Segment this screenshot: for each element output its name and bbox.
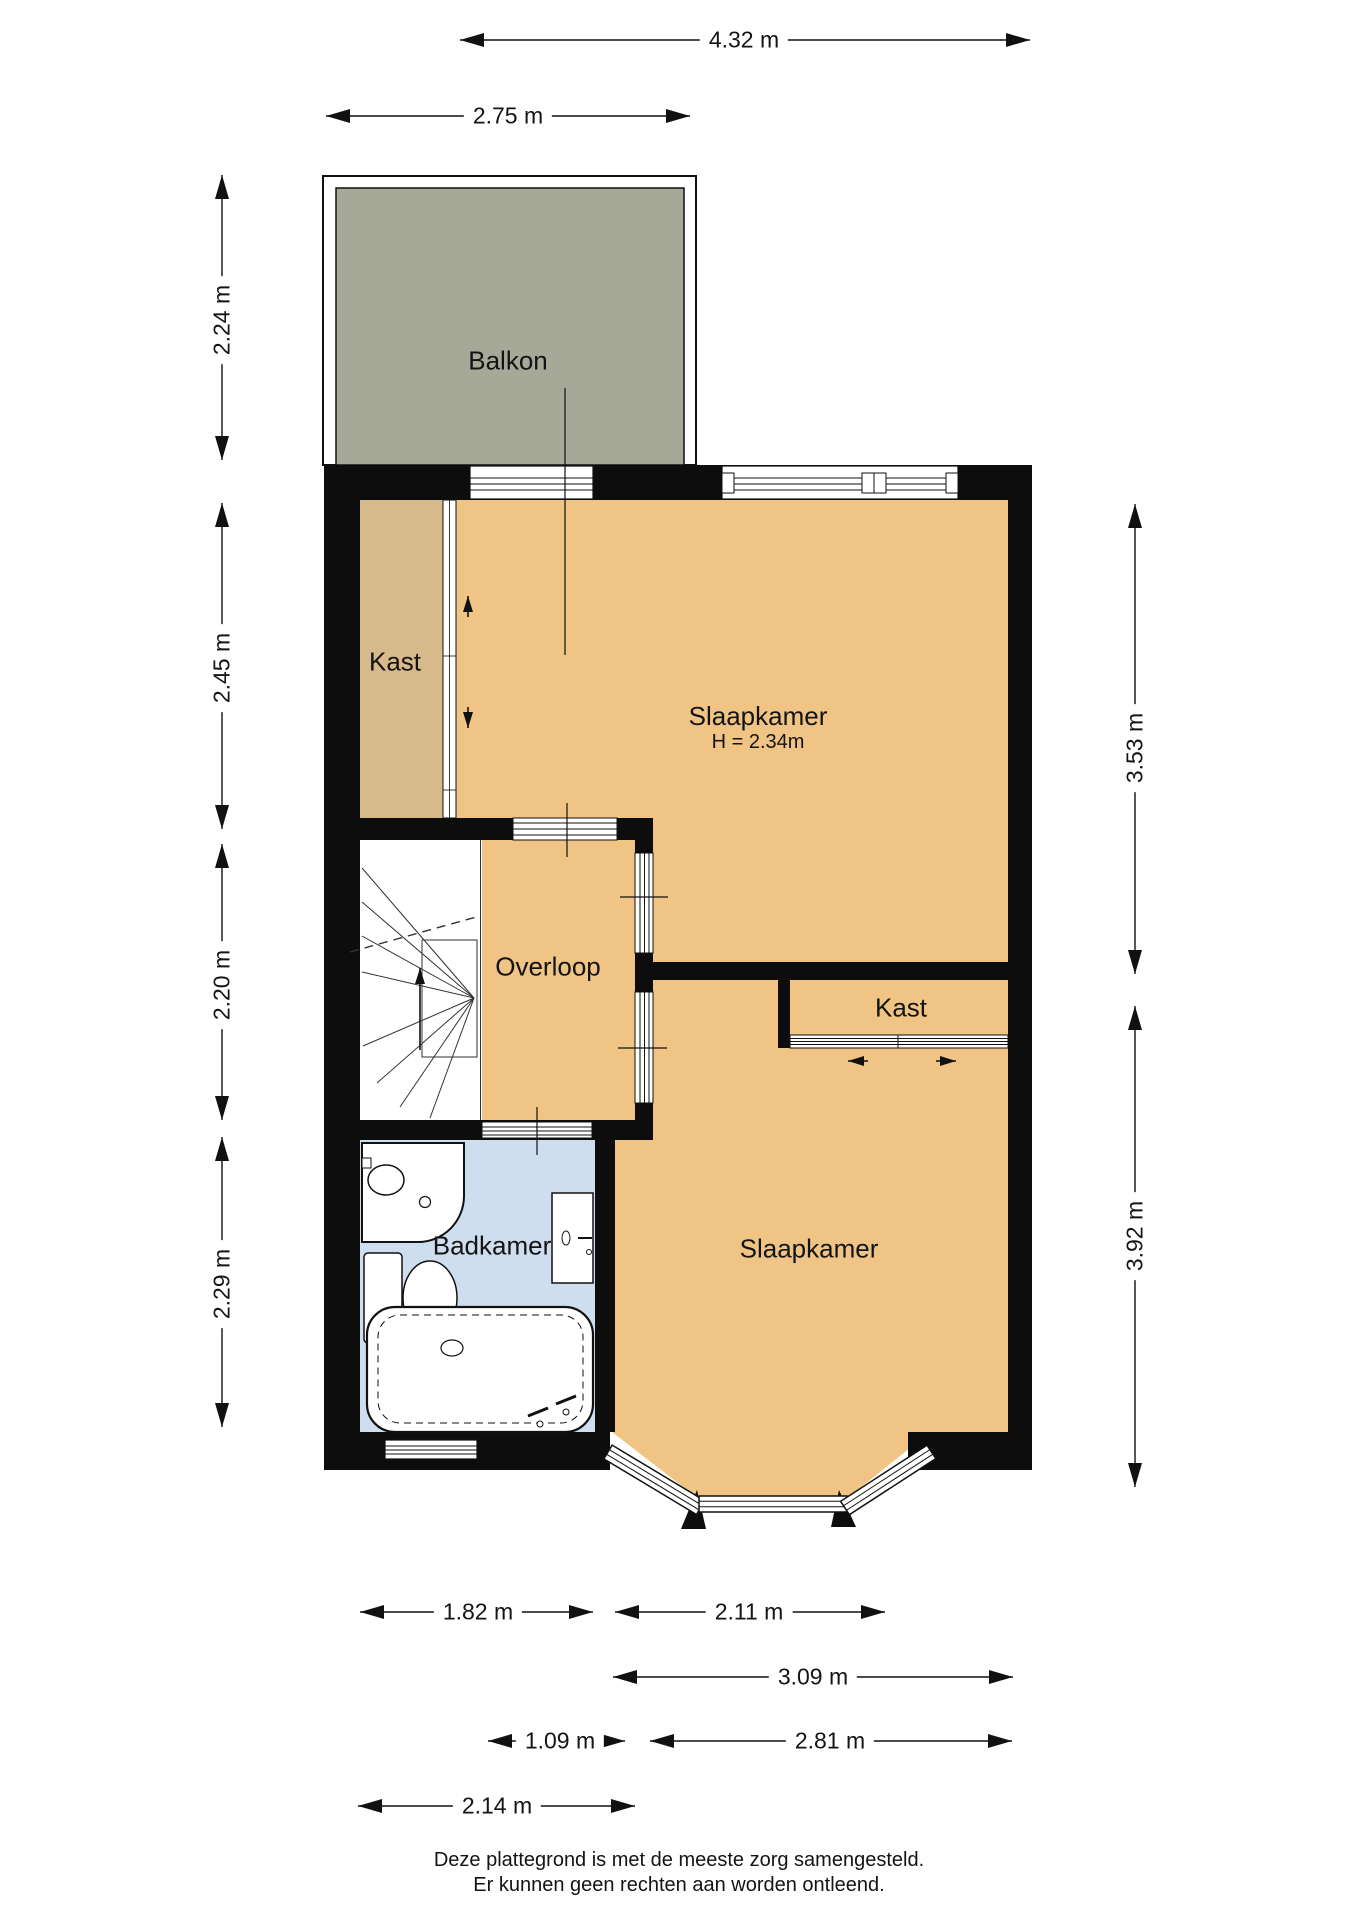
closet-partition	[443, 500, 456, 818]
dim-label-slaapkamer-bot-width: 3.09 m	[769, 1664, 857, 1691]
room-label-balkon: Balkon	[468, 346, 548, 377]
room-label-kast-right: Kast	[875, 993, 927, 1024]
dim-label-slaapkamer-inner-width: 2.81 m	[786, 1728, 874, 1755]
washbasin	[368, 1165, 404, 1195]
top-window	[722, 466, 958, 499]
faucet-dot	[563, 1409, 569, 1415]
bathroom-window	[385, 1440, 477, 1459]
disclaimer-line-1: Deze plattegrond is met de meeste zorg s…	[0, 1848, 1358, 1873]
room-label-slaapkamer-top-height: H = 2.34m	[689, 731, 828, 753]
disclaimer-line-2: Er kunnen geen rechten aan worden ontlee…	[0, 1873, 1358, 1898]
dim-label-bay-width: 2.11 m	[706, 1599, 793, 1626]
faucet-dot	[537, 1421, 543, 1427]
dim-label-balcony-depth: 2.24 m	[209, 276, 236, 364]
bathtub	[367, 1307, 593, 1432]
room-label-badkamer: Badkamer	[433, 1231, 552, 1262]
dim-label-overloop-height: 2.20 m	[209, 941, 236, 1029]
dim-label-badkamer-width: 1.82 m	[434, 1599, 522, 1626]
door-handle	[562, 1231, 570, 1245]
dim-label-badkamer-height: 2.29 m	[209, 1240, 236, 1328]
wall-left	[324, 465, 360, 1470]
floorplan-drawing	[0, 0, 1358, 1920]
dim-label-kast-height: 2.45 m	[209, 624, 236, 712]
room-label-slaapkamer-top: Slaapkamer H = 2.34m	[689, 701, 828, 753]
door-key-dot	[587, 1250, 592, 1255]
dim-label-overloop-width: 1.09 m	[516, 1728, 604, 1755]
bay-window-center	[699, 1496, 847, 1512]
wall-bathroom-right	[595, 1140, 615, 1432]
disclaimer: Deze plattegrond is met de meeste zorg s…	[0, 1848, 1358, 1898]
dim-label-stair-hall-width: 2.14 m	[453, 1793, 541, 1820]
room-label-kast-upper: Kast	[369, 647, 421, 678]
dim-label-slaapkamer-bot-height: 3.92 m	[1122, 1192, 1149, 1280]
balcony-structure	[323, 176, 696, 465]
dim-label-slaapkamer-top-height: 3.53 m	[1122, 704, 1149, 792]
floorplan-page: Balkon Kast Slaapkamer H = 2.34m Overloo…	[0, 0, 1358, 1920]
dim-label-top-total: 4.32 m	[700, 27, 788, 54]
wall-closet-right-side	[778, 980, 790, 1048]
balcony-floor	[336, 188, 684, 465]
room-label-slaapkamer-bottom: Slaapkamer	[740, 1234, 879, 1265]
wall-mid-divider	[635, 962, 1008, 980]
drain	[420, 1197, 431, 1208]
dim-label-balcony-width: 2.75 m	[464, 103, 552, 130]
room-label-slaapkamer-top-name: Slaapkamer	[689, 701, 828, 731]
tap	[362, 1158, 371, 1168]
room-label-overloop: Overloop	[495, 952, 601, 983]
bathtub-drain	[441, 1340, 463, 1356]
wall-right	[1008, 465, 1032, 1470]
